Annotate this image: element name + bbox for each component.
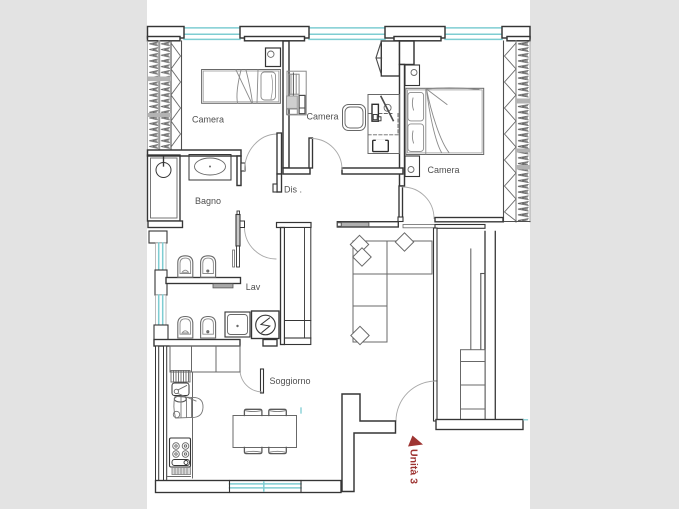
svg-text:Camera: Camera	[427, 165, 459, 175]
svg-text:Bagno: Bagno	[195, 196, 221, 206]
svg-text:Soggiorno: Soggiorno	[269, 376, 310, 386]
svg-text:Dis .: Dis .	[284, 185, 302, 195]
svg-text:Lav: Lav	[246, 282, 261, 292]
svg-text:Unità 3: Unità 3	[408, 449, 420, 484]
svg-text:Camera: Camera	[306, 112, 338, 122]
svg-text:Camera: Camera	[192, 115, 224, 125]
